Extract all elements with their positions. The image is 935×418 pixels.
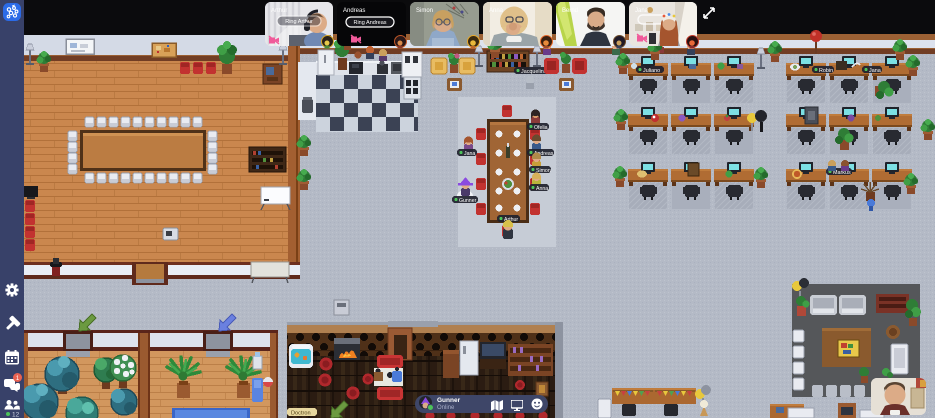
svg-text:Jana: Jana <box>635 8 649 14</box>
svg-text:Simon: Simon <box>416 8 433 14</box>
svg-text:Robin: Robin <box>819 68 833 74</box>
svg-text:Arthur: Arthur <box>271 8 287 14</box>
svg-text:Anna: Anna <box>536 186 548 192</box>
svg-text:Ring Arthur: Ring Arthur <box>285 19 313 25</box>
svg-text:12: 12 <box>12 412 20 418</box>
svg-text:Gunner: Gunner <box>459 198 477 204</box>
svg-text:Jana: Jana <box>464 151 475 157</box>
svg-text:Anna: Anna <box>489 8 504 14</box>
svg-text:Jacqueline: Jacqueline <box>521 69 547 75</box>
svg-text:Bernd: Bernd <box>562 8 578 14</box>
svg-text:Andreas: Andreas <box>343 8 365 14</box>
svg-text:Doctron: Doctron <box>291 411 311 417</box>
svg-text:Juliano: Juliano <box>643 68 660 74</box>
svg-text:Ring Andreas: Ring Andreas <box>353 20 386 26</box>
svg-text:Jana: Jana <box>869 68 881 74</box>
svg-text:Ofelia: Ofelia <box>534 125 548 131</box>
